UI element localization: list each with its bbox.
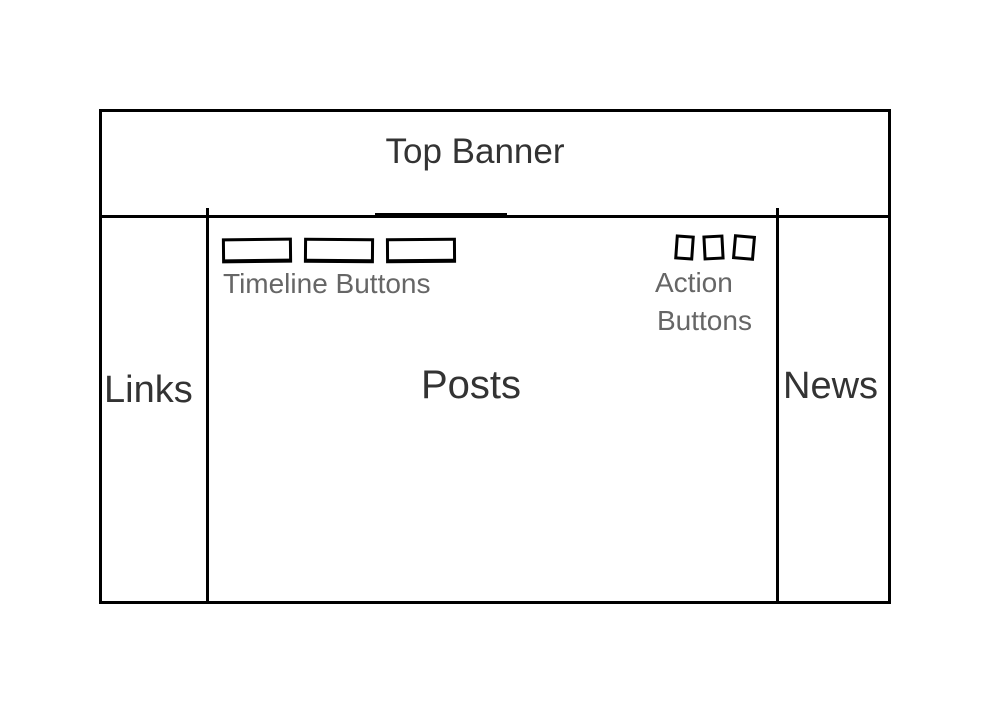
wireframe-canvas: Top Banner Links Timeline Buttons Action…: [0, 0, 1000, 713]
action-button-placeholder-1[interactable]: [674, 234, 695, 260]
action-button-placeholder-3[interactable]: [732, 234, 756, 261]
timeline-button-placeholder-3[interactable]: [386, 238, 456, 263]
news-sidebar-region: News: [779, 218, 888, 601]
action-buttons-label-line2: Buttons: [657, 307, 752, 335]
top-banner-label: Top Banner: [82, 134, 868, 169]
posts-label: Posts: [421, 365, 521, 405]
news-label: News: [783, 367, 878, 405]
posts-region: Timeline Buttons Action Buttons Posts: [209, 218, 776, 601]
timeline-button-placeholder-2[interactable]: [304, 238, 374, 264]
action-button-placeholder-2[interactable]: [702, 234, 724, 260]
timeline-buttons-label: Timeline Buttons: [223, 270, 431, 298]
timeline-buttons-group: [222, 238, 456, 263]
top-banner-region: Top Banner: [102, 112, 888, 215]
timeline-button-placeholder-1[interactable]: [222, 238, 292, 264]
links-label: Links: [104, 371, 193, 409]
links-sidebar-region: Links: [102, 218, 206, 601]
page-layout-wireframe: Top Banner Links Timeline Buttons Action…: [99, 109, 891, 604]
action-buttons-label-line1: Action: [655, 269, 733, 297]
action-buttons-group: [675, 235, 755, 260]
